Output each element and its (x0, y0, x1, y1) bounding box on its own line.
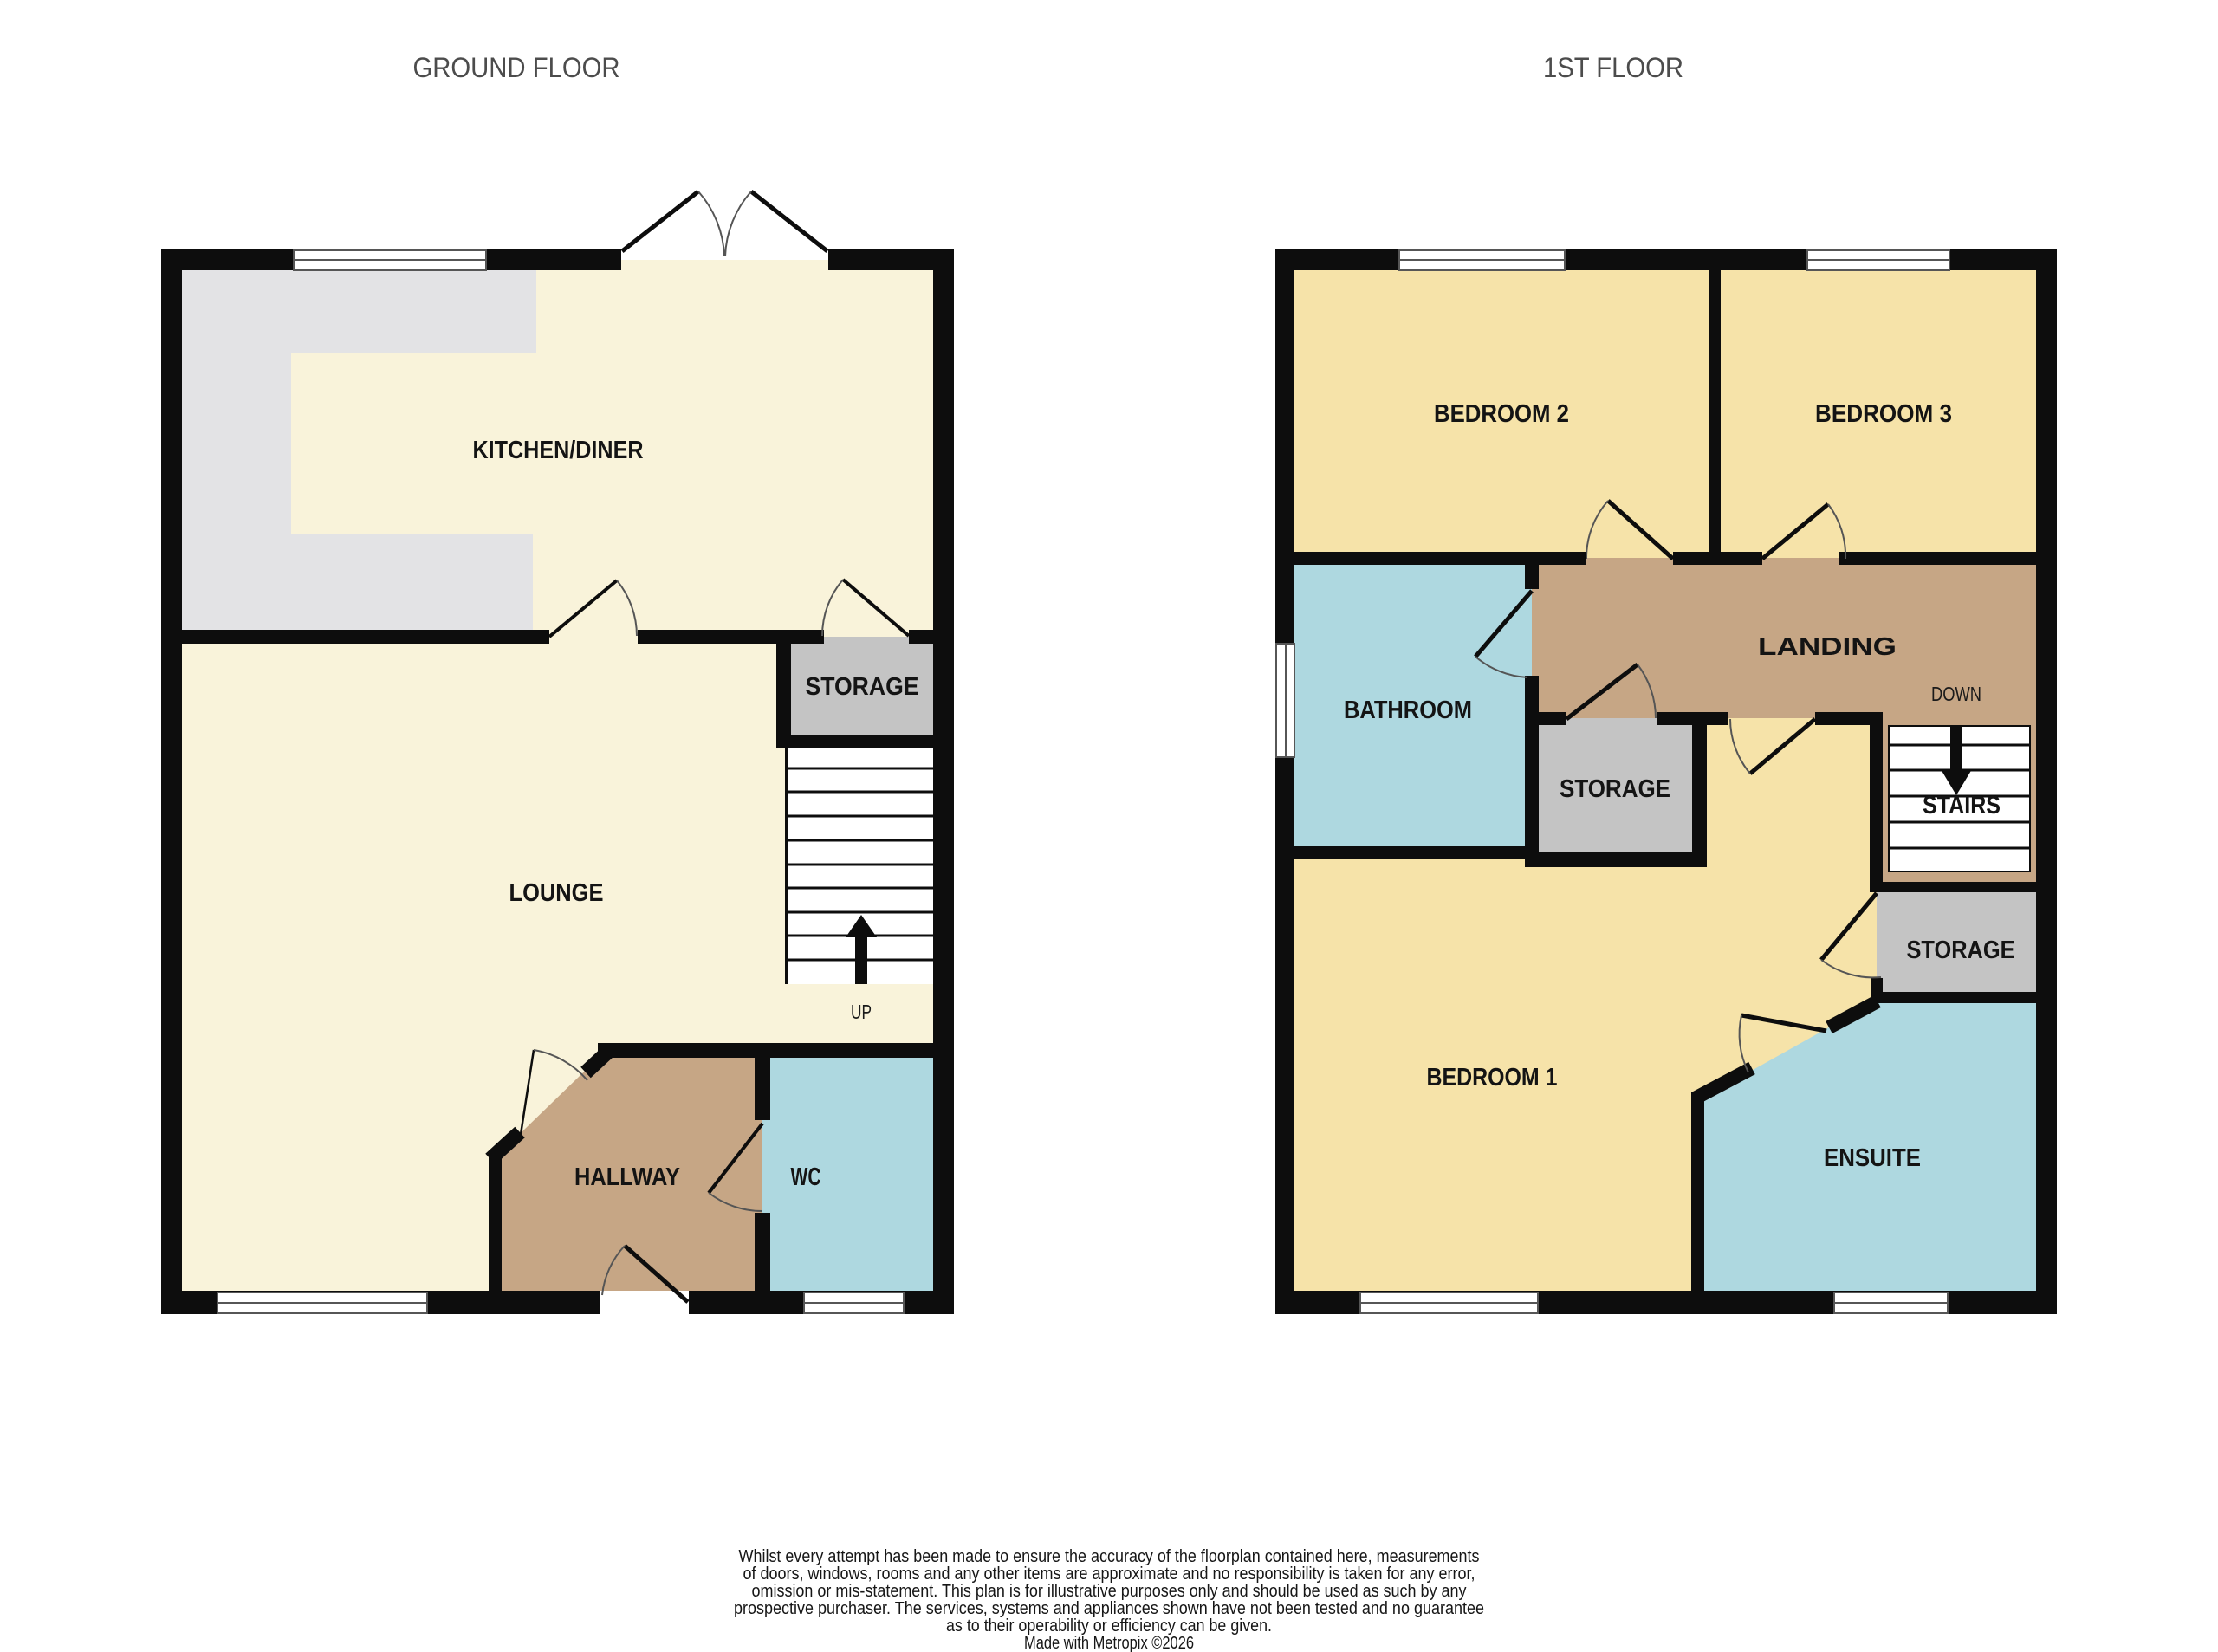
svg-text:STAIRS: STAIRS (1923, 792, 2001, 820)
svg-text:WC: WC (791, 1163, 821, 1191)
svg-text:ENSUITE: ENSUITE (1824, 1144, 1921, 1172)
svg-text:Whilst every attempt has been: Whilst every attempt has been made to en… (739, 1547, 1480, 1566)
svg-text:UP: UP (851, 1001, 872, 1023)
svg-text:Made with Metropix ©2026: Made with Metropix ©2026 (1024, 1634, 1194, 1652)
svg-text:as to their operability or eff: as to their operability or efficiency ca… (946, 1616, 1272, 1636)
svg-text:prospective purchaser. The ser: prospective purchaser. The services, sys… (734, 1599, 1484, 1618)
svg-text:DOWN: DOWN (1931, 683, 1981, 705)
svg-text:GROUND FLOOR: GROUND FLOOR (413, 52, 620, 83)
svg-text:STORAGE: STORAGE (806, 673, 919, 701)
svg-text:BEDROOM 3: BEDROOM 3 (1815, 400, 1952, 428)
svg-text:HALLWAY: HALLWAY (574, 1163, 680, 1191)
svg-text:LOUNGE: LOUNGE (509, 879, 604, 907)
svg-text:LANDING: LANDING (1758, 633, 1897, 661)
svg-text:STORAGE: STORAGE (1907, 936, 2015, 964)
svg-text:omission or mis-statement. Thi: omission or mis-statement. This plan is … (752, 1582, 1467, 1601)
svg-text:BATHROOM: BATHROOM (1344, 696, 1472, 724)
svg-text:BEDROOM 1: BEDROOM 1 (1427, 1064, 1558, 1092)
svg-text:of doors, windows, rooms and a: of doors, windows, rooms and any other i… (743, 1565, 1475, 1584)
svg-text:KITCHEN/DINER: KITCHEN/DINER (473, 437, 644, 464)
svg-text:STORAGE: STORAGE (1560, 775, 1670, 803)
svg-text:1ST FLOOR: 1ST FLOOR (1543, 52, 1683, 83)
svg-text:BEDROOM 2: BEDROOM 2 (1434, 400, 1569, 428)
